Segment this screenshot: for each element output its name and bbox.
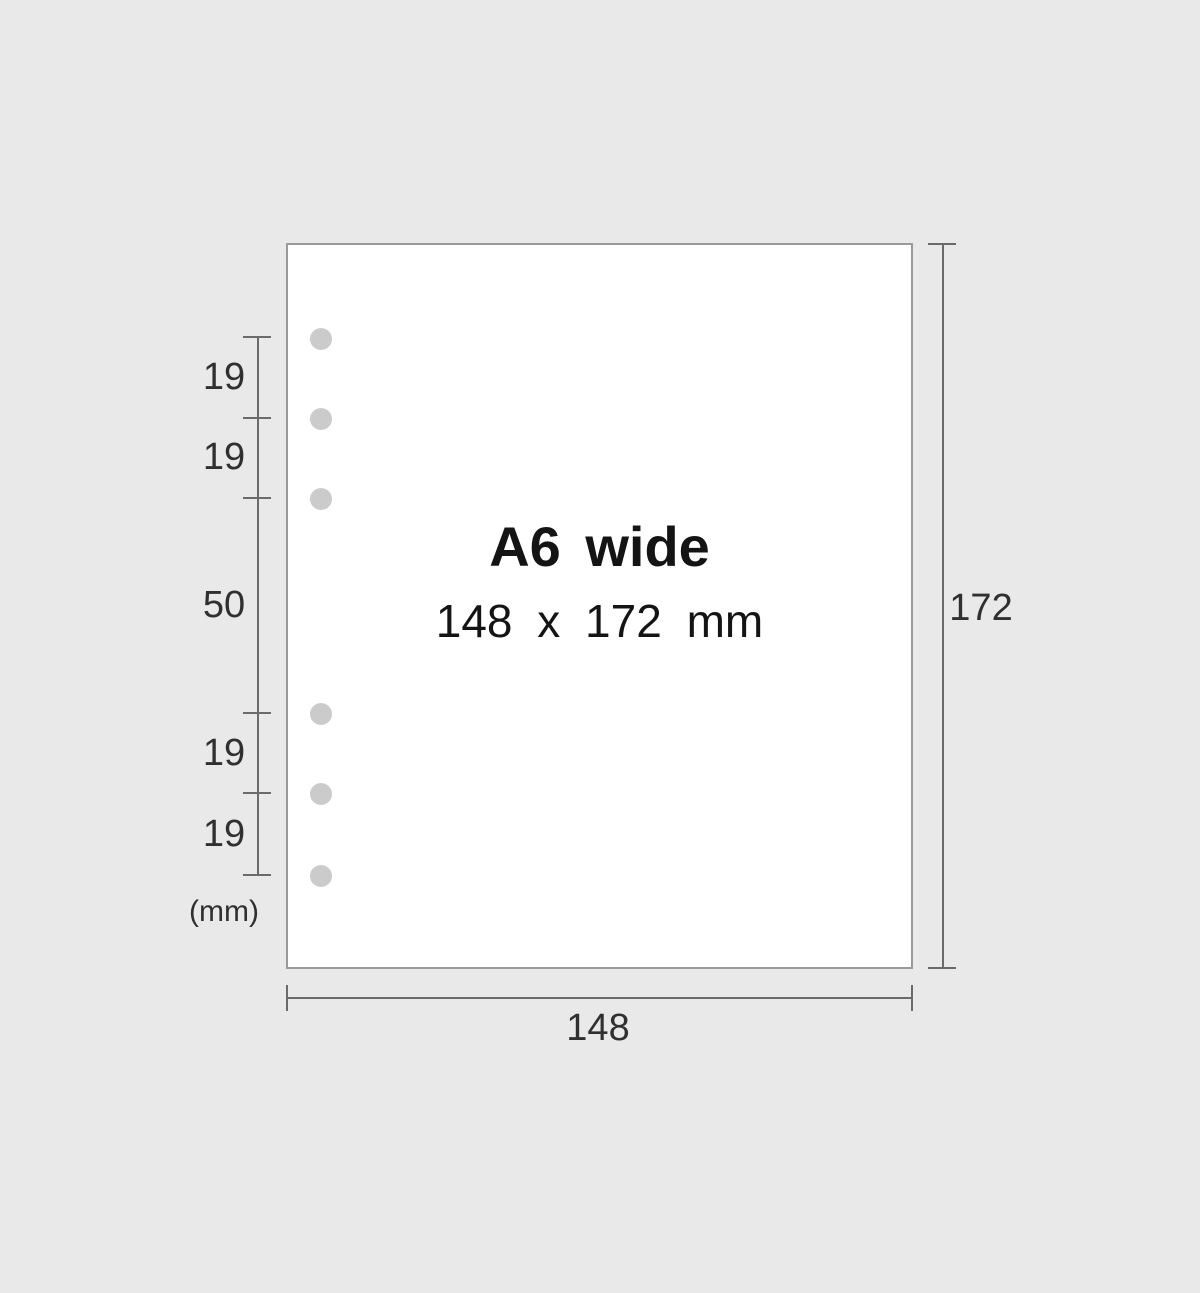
punch-hole: [310, 703, 332, 725]
tick: [243, 874, 271, 876]
tick: [928, 243, 956, 245]
right-dimension-line: [942, 244, 944, 969]
paper-title: A6 wide: [288, 517, 911, 577]
tick: [243, 792, 271, 794]
paper-sheet: A6 wide 148 x 172 mm: [286, 243, 913, 969]
punch-hole: [310, 783, 332, 805]
left-dimension-label: 19: [184, 731, 264, 775]
diagram-canvas: A6 wide 148 x 172 mm 19 19 50 19 19 (mm)…: [0, 0, 1200, 1293]
width-dimension-label: 148: [548, 1006, 648, 1050]
paper-size-label: 148 x 172 mm: [288, 595, 911, 647]
bottom-dimension-line: [287, 997, 913, 999]
tick: [243, 712, 271, 714]
punch-hole: [310, 408, 332, 430]
left-dimension-label: 19: [184, 435, 264, 479]
punch-hole: [310, 865, 332, 887]
tick: [286, 985, 288, 1011]
tick: [243, 336, 271, 338]
tick: [243, 497, 271, 499]
unit-label: (mm): [184, 893, 264, 931]
punch-hole: [310, 328, 332, 350]
left-dimension-label: 50: [184, 583, 264, 627]
tick: [243, 417, 271, 419]
tick: [928, 967, 956, 969]
punch-hole: [310, 488, 332, 510]
tick: [911, 985, 913, 1011]
height-dimension-label: 172: [946, 586, 1016, 630]
paper-label-group: A6 wide 148 x 172 mm: [288, 517, 911, 647]
left-dimension-label: 19: [184, 812, 264, 856]
left-dimension-label: 19: [184, 355, 264, 399]
